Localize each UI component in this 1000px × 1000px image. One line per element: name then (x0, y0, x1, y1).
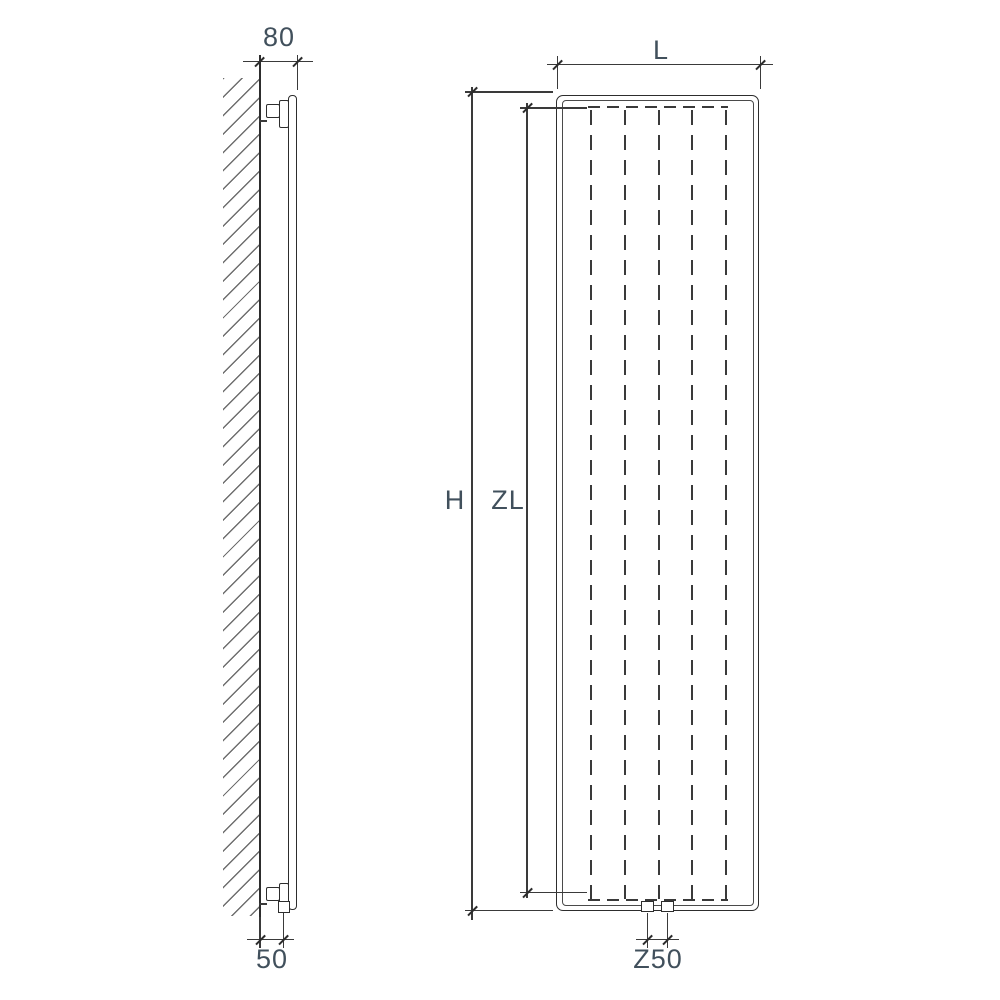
wall-hatch (223, 78, 260, 916)
top-collector-hidden-line (588, 106, 728, 108)
channel-hidden-line-2 (624, 110, 626, 899)
channel-hidden-line-5 (725, 110, 727, 899)
channel-hidden-line-4 (691, 110, 693, 899)
dimension-L-line (547, 64, 773, 65)
dimension-50-line (247, 939, 294, 940)
channel-hidden-line-3 (658, 110, 660, 899)
dimension-L-extension-right (760, 56, 761, 89)
dimension-H-extension-top (465, 91, 553, 92)
radiator-dimension-drawing: 80 50 L (0, 0, 1000, 1000)
channel-hidden-line-1 (590, 110, 592, 899)
radiator-side-profile (288, 95, 297, 910)
dimension-H-label: H (425, 487, 485, 514)
top-bracket-clip (266, 104, 280, 118)
dimension-80-line (243, 61, 313, 62)
dimension-ZL-line (526, 103, 527, 898)
right-connection-stub (661, 901, 674, 912)
dimension-80-label: 80 (249, 24, 309, 51)
dimension-ZL-extension-top (520, 107, 587, 108)
dimension-L-extension-left (557, 56, 558, 89)
dimension-ZL-label: ZL (478, 487, 538, 514)
left-connection-stub (641, 901, 654, 912)
top-bracket-arm (259, 120, 267, 122)
dimension-Z50-label: Z50 (628, 946, 688, 973)
bottom-bracket-arm (259, 903, 267, 905)
dimension-H-line (471, 87, 472, 920)
bottom-collector-hidden-line (588, 899, 728, 901)
bottom-pipe-connection (278, 901, 290, 913)
top-bracket-rail (279, 100, 289, 128)
dimension-ZL-extension-bottom (520, 892, 587, 893)
dimension-Z50-extension-left (647, 913, 648, 948)
wall-edge-line (259, 55, 261, 917)
dimension-L-label: L (631, 37, 691, 64)
dimension-Z50-line (636, 939, 679, 940)
dimension-H-extension-bottom (465, 910, 553, 911)
bottom-bracket-clip (266, 887, 280, 901)
dimension-Z50-extension-right (667, 913, 668, 948)
dimension-50-label: 50 (242, 946, 302, 973)
dimension-50-extension-right (283, 913, 284, 948)
